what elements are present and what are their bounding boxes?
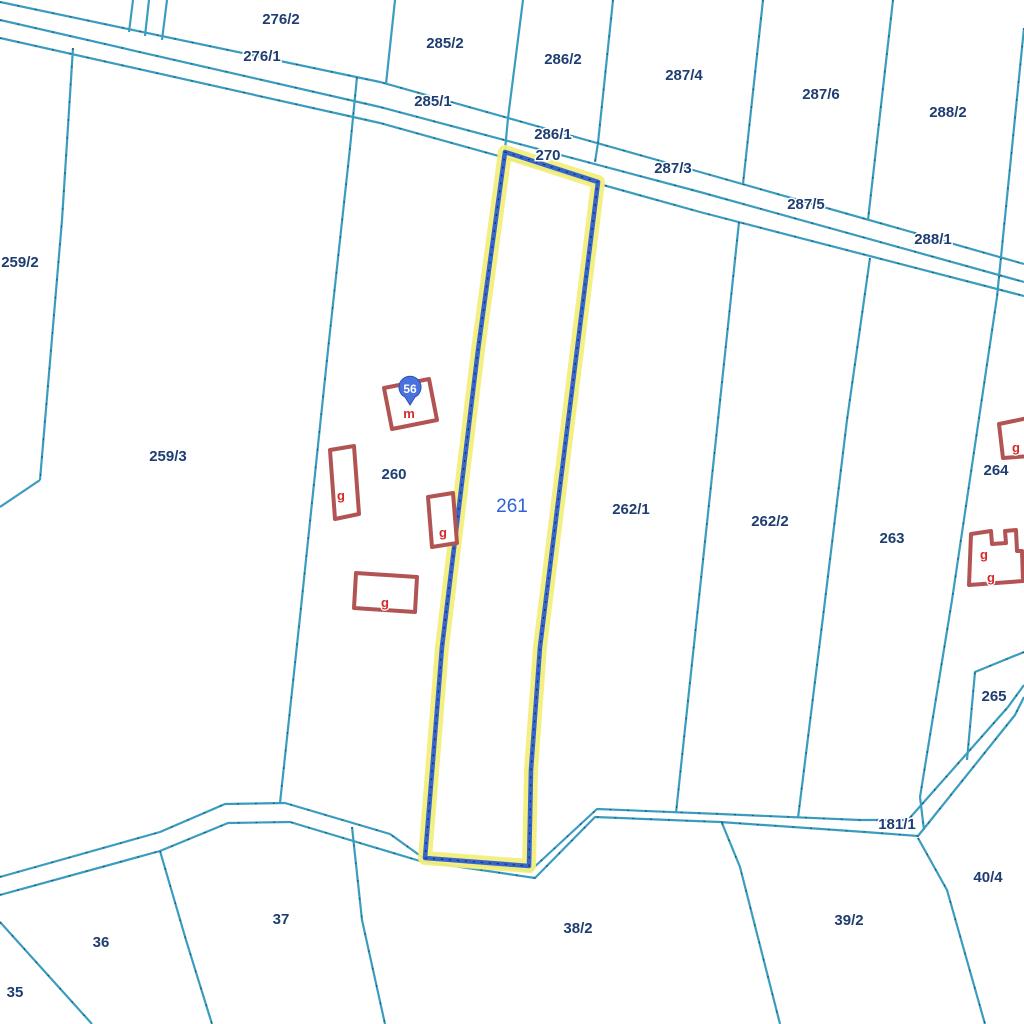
parcel-label: 262/1 bbox=[612, 501, 650, 518]
parcel-label: 259/2 bbox=[1, 254, 39, 271]
building-label: g bbox=[987, 570, 995, 585]
parcel-boundary bbox=[505, 0, 523, 150]
parcel-label: 36 bbox=[93, 934, 110, 951]
parcel-boundary bbox=[0, 922, 92, 1024]
cadastral-map[interactable]: 276/2276/1285/2286/2287/4287/6288/2285/1… bbox=[0, 0, 1024, 1024]
map-viewport: 276/2276/1285/2286/2287/4287/6288/2285/1… bbox=[0, 0, 1024, 1024]
parcel-label: 39/2 bbox=[834, 912, 863, 929]
parcel-boundary bbox=[0, 480, 40, 507]
parcel-label: 259/3 bbox=[149, 448, 187, 465]
parcel-label: 288/2 bbox=[929, 104, 967, 121]
parcel-label: 260 bbox=[381, 466, 406, 483]
parcel-boundary bbox=[595, 0, 613, 162]
parcel-boundary bbox=[40, 48, 73, 480]
parcel-boundary bbox=[743, 0, 763, 184]
parcel-boundary bbox=[129, 0, 133, 32]
parcel-boundary bbox=[798, 258, 870, 818]
parcel-boundary bbox=[386, 0, 395, 84]
survey-tick-marks bbox=[352, 827, 385, 1024]
survey-tick-marks bbox=[0, 2, 1024, 264]
road-line bbox=[0, 2, 1024, 264]
survey-tick-marks bbox=[0, 685, 1024, 877]
parcel-label: 287/5 bbox=[787, 196, 825, 213]
parcel-label: 286/1 bbox=[534, 126, 572, 143]
parcel-boundary bbox=[722, 823, 780, 1024]
parcel-label: 276/2 bbox=[262, 11, 300, 28]
parcel-label: 288/1 bbox=[914, 231, 952, 248]
path-line bbox=[0, 685, 1024, 877]
parcel-label: 287/3 bbox=[654, 160, 692, 177]
building-label: g bbox=[439, 525, 447, 540]
parcel-label: 287/6 bbox=[802, 86, 840, 103]
parcel-label: 285/2 bbox=[426, 35, 464, 52]
parcel-boundary bbox=[352, 827, 385, 1024]
parcel-boundary bbox=[145, 0, 149, 36]
building-garage bbox=[969, 530, 1023, 585]
survey-tick-marks bbox=[918, 838, 985, 1024]
building-label: g bbox=[381, 595, 389, 610]
parcel-label: 38/2 bbox=[563, 920, 592, 937]
parcel-label: 287/4 bbox=[665, 67, 703, 84]
parcel-label: 40/4 bbox=[973, 869, 1003, 886]
parcel-label: 37 bbox=[273, 911, 290, 928]
parcel-label: 270 bbox=[535, 147, 560, 164]
buildings bbox=[330, 379, 1024, 612]
parcel-label: 262/2 bbox=[751, 513, 789, 530]
parcel-boundary bbox=[918, 838, 985, 1024]
parcel-label: 35 bbox=[7, 984, 24, 1001]
parcel-label: 286/2 bbox=[544, 51, 582, 68]
parcel-boundary bbox=[868, 0, 893, 220]
road-line bbox=[0, 38, 1024, 296]
building-garage bbox=[330, 446, 359, 519]
parcel-label: 181/1 bbox=[878, 816, 916, 833]
building-label: g bbox=[980, 547, 988, 562]
building-label: m bbox=[403, 406, 415, 421]
selected-parcel-label: 261 bbox=[496, 496, 528, 517]
address-marker-number: 56 bbox=[403, 382, 417, 396]
parcel-boundary bbox=[280, 77, 357, 803]
parcel-label: 285/1 bbox=[414, 93, 452, 110]
parcel-boundary bbox=[162, 0, 167, 40]
parcel-label: 276/1 bbox=[243, 48, 281, 65]
parcel-label: 263 bbox=[879, 530, 904, 547]
parcel-label: 265 bbox=[981, 688, 1006, 705]
building-label: g bbox=[337, 488, 345, 503]
parcel-boundary bbox=[160, 851, 212, 1024]
building-label: g bbox=[1012, 440, 1020, 455]
parcel-label: 264 bbox=[983, 462, 1009, 479]
